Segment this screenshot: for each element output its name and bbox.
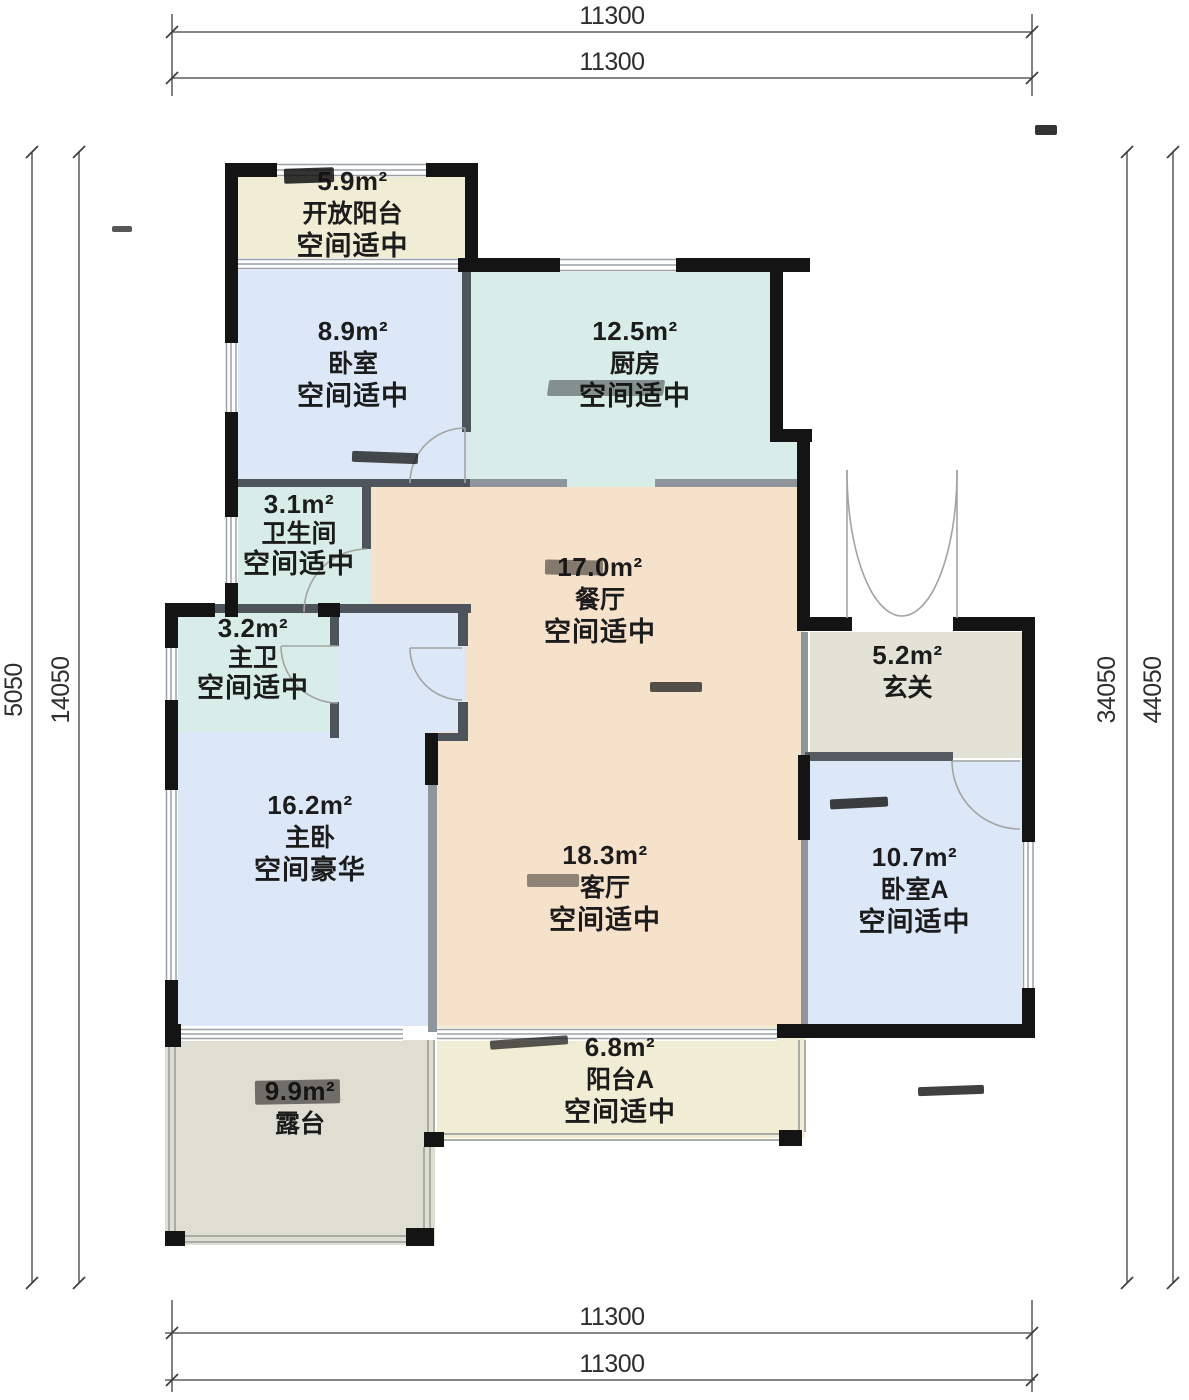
wall-hall-bottom [805, 752, 953, 761]
room-kitchen-label: 12.5m² 厨房 空间适中 [495, 316, 775, 413]
artifact-smudge [352, 451, 418, 464]
terrace-corner-post [165, 1231, 185, 1246]
window-bedroom-a-right [1022, 842, 1035, 988]
room-bathroom-label: 3.1m² 卫生间 空间适中 [228, 490, 370, 579]
wall-bedroom-bottom [225, 479, 471, 487]
window-master-bedroom-left [165, 790, 178, 980]
room-master-bath-label: 3.2m² 主卫 空间适中 [168, 614, 338, 703]
room-terrace-floor [165, 1040, 435, 1245]
room-open-balcony-label: 5.9m² 开放阳台 空间适中 [240, 166, 465, 263]
wall-bedroom-kitchen [462, 262, 471, 432]
window-master-bedroom-bottom [181, 1028, 403, 1041]
room-bedroom-label: 8.9m² 卧室 空间适中 [248, 316, 458, 413]
dim-label-left-outer: 5050 [0, 632, 26, 748]
artifact-smudge [112, 226, 132, 232]
dim-label-right-outer: 44050 [1139, 632, 1165, 748]
wall-master-bath-right-lower [330, 702, 339, 738]
room-master-bedroom-label: 16.2m² 主卧 空间豪华 [185, 790, 435, 887]
dim-label-bottom-outer: 11300 [502, 1350, 722, 1379]
dim-label-top-inner: 11300 [502, 48, 722, 77]
balcony-corner-post [424, 1132, 444, 1147]
room-bedroom-a-label: 10.7m² 卧室A 空间适中 [812, 842, 1017, 939]
dim-label-left-inner: 14050 [47, 632, 73, 748]
wall-kitchen-bottom-right [655, 479, 810, 487]
room-master-vestibule-floor [338, 613, 465, 738]
dim-label-top-outer: 11300 [502, 2, 722, 31]
door-entry-double [847, 470, 957, 618]
window-bedroom-left [225, 343, 238, 412]
artifact-smudge [284, 167, 334, 184]
window-kitchen-top [560, 258, 676, 272]
room-living-label: 18.3m² 客厅 空间适中 [460, 840, 750, 937]
artifact-smudge [545, 559, 603, 575]
wall-vestibule-bottom [437, 733, 468, 741]
artifact-smudge [547, 380, 665, 396]
artifact-smudge [255, 1079, 340, 1104]
dim-label-right-inner: 34050 [1093, 632, 1119, 748]
artifact-smudge [1035, 125, 1057, 135]
wall-vestibule-dining-lower [458, 702, 468, 738]
balcony-corner-post [779, 1130, 802, 1146]
wall-bedroom-a-left [801, 840, 808, 1026]
floor-plan: 11300 11300 11300 11300 5050 14050 34050… [0, 0, 1189, 1400]
artifact-smudge [527, 874, 579, 887]
artifact-smudge [650, 682, 702, 692]
room-hall-label: 5.2m² 玄关 [800, 640, 1015, 703]
wall-kitchen-bottom-left [470, 479, 567, 487]
dim-label-bottom-inner: 11300 [502, 1303, 722, 1332]
terrace-corner-post [406, 1228, 434, 1246]
